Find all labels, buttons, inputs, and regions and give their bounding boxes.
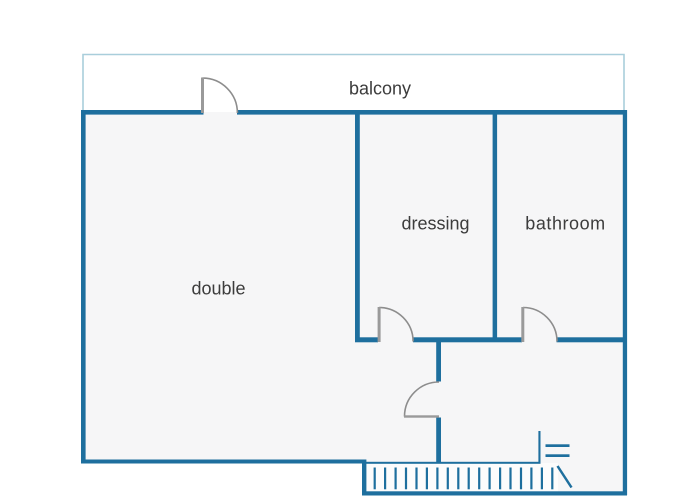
svg-text:dressing: dressing — [401, 214, 469, 234]
svg-text:balcony: balcony — [349, 79, 411, 99]
svg-text:bathroom: bathroom — [525, 214, 605, 234]
svg-text:double: double — [191, 279, 245, 299]
